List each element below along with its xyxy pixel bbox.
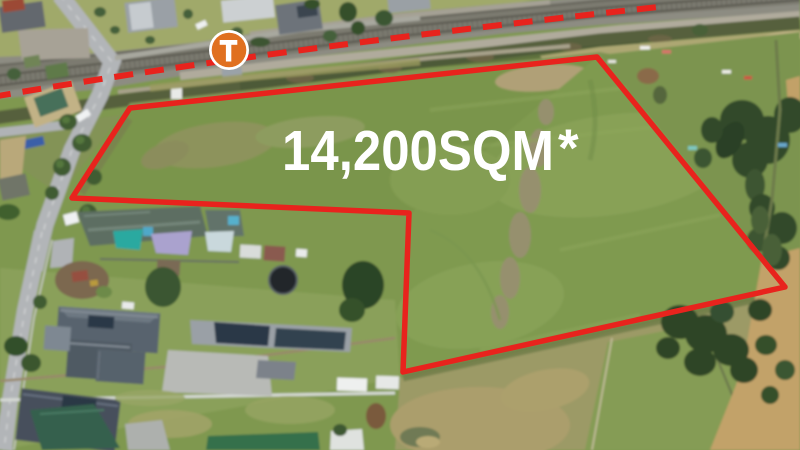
- svg-text:14,200SQM: 14,200SQM: [282, 119, 554, 183]
- svg-text:*: *: [558, 119, 579, 178]
